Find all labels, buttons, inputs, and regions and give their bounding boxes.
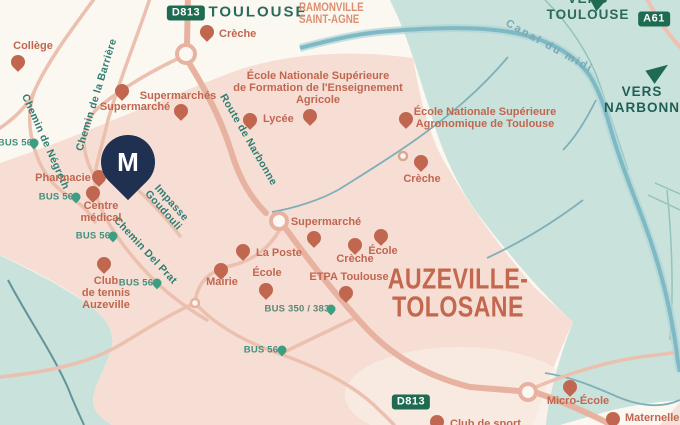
poi-creche-est: Crèche xyxy=(403,173,440,185)
illustrated-map: Chemin de la Barrière Chemin de Négreth … xyxy=(0,0,680,425)
main-location-pin-letter: M xyxy=(101,135,155,189)
poi-ecole-ouest: École xyxy=(252,267,281,279)
poi-college: Collège xyxy=(13,40,53,52)
city-auzeville-tolosane: AUZEVILLE- TOLOSANE xyxy=(388,266,529,321)
direction-vers-toulouse: VERS TOULOUSE xyxy=(533,0,643,22)
poi-mairie: Mairie xyxy=(206,276,238,288)
poi-supermarche-centre: Supermarché xyxy=(291,216,361,228)
poi-club-sport: Club de sport xyxy=(450,418,521,425)
bus-stop-350-383: BUS 350 / 383 xyxy=(265,304,330,315)
poi-maternelle: Maternelle xyxy=(625,412,679,424)
poi-lycee: Lycée xyxy=(263,113,294,125)
poi-centre-medical: Centre médical xyxy=(81,200,122,224)
direction-vers-narbonne: VERS NARBONNE xyxy=(604,84,680,115)
road-badge-d813-bottom: D813 xyxy=(392,395,430,410)
poi-etpa-toulouse: ETPA Toulouse xyxy=(309,271,388,283)
road-badge-d813-top: D813 xyxy=(167,6,205,21)
poi-pharmacie: Pharmacie xyxy=(35,172,91,184)
poi-creche-nord: Crèche xyxy=(219,28,256,40)
poi-la-poste: La Poste xyxy=(256,247,302,259)
bus-stop-56-e: BUS 56 xyxy=(244,345,278,356)
bus-stop-56-a: BUS 56 xyxy=(0,138,32,149)
road-badge-a61: A61 xyxy=(638,12,670,27)
bus-stop-56-d: BUS 56 xyxy=(119,278,153,289)
poi-ecole-est: École xyxy=(368,245,397,257)
poi-ensfea: École Nationale Supérieure de Formation … xyxy=(233,70,402,106)
city-toulouse: TOULOUSE xyxy=(208,4,307,21)
bus-stop-56-b: BUS 56 xyxy=(39,192,73,203)
poi-micro-ecole: Micro-École xyxy=(547,395,609,407)
poi-ensat: École Nationale Supérieure Agronomique d… xyxy=(414,106,556,130)
poi-supermarche-nw: Supermarché xyxy=(100,101,170,113)
city-ramonville-saint-agne: RAMONVILLE SAINT-AGNE xyxy=(299,3,364,26)
bus-stop-56-c: BUS 56 xyxy=(76,231,110,242)
main-location-pin: M xyxy=(90,124,166,200)
